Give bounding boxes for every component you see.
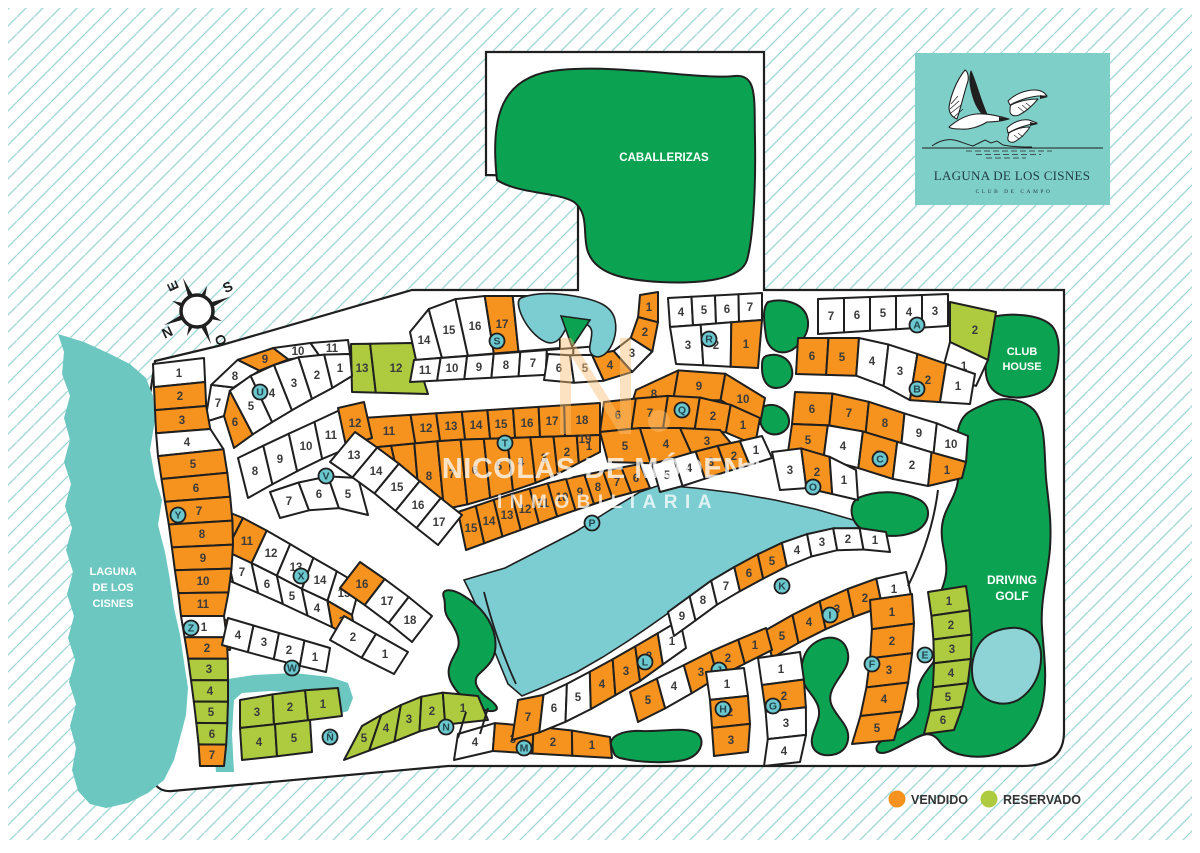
svg-text:7: 7 xyxy=(846,408,852,420)
svg-text:1: 1 xyxy=(669,636,676,648)
svg-text:9: 9 xyxy=(476,362,482,374)
svg-text:3: 3 xyxy=(932,306,938,318)
svg-text:9: 9 xyxy=(916,428,922,440)
svg-text:4: 4 xyxy=(256,737,263,749)
svg-text:1: 1 xyxy=(872,535,879,547)
svg-text:5: 5 xyxy=(208,707,215,719)
svg-text:4: 4 xyxy=(948,668,955,680)
svg-text:V: V xyxy=(322,471,329,483)
svg-text:9: 9 xyxy=(679,611,685,623)
svg-text:7: 7 xyxy=(209,750,215,762)
svg-text:9: 9 xyxy=(696,381,702,393)
svg-text:11: 11 xyxy=(325,430,338,442)
svg-text:L: L xyxy=(642,657,649,669)
svg-text:H: H xyxy=(719,704,727,716)
svg-text:W: W xyxy=(287,663,297,675)
svg-text:2: 2 xyxy=(814,467,820,479)
svg-text:LAGUNA DE LOS CISNES: LAGUNA DE LOS CISNES xyxy=(934,168,1091,183)
svg-text:3: 3 xyxy=(206,664,212,676)
svg-text:5: 5 xyxy=(361,733,368,745)
svg-text:2: 2 xyxy=(429,706,435,718)
svg-text:3: 3 xyxy=(179,415,185,427)
svg-text:6: 6 xyxy=(809,351,815,363)
svg-text:12: 12 xyxy=(349,418,362,430)
svg-text:2: 2 xyxy=(710,411,716,423)
svg-text:5: 5 xyxy=(880,308,887,320)
svg-text:CISNES: CISNES xyxy=(93,598,134,610)
svg-text:7: 7 xyxy=(747,302,753,314)
svg-text:3: 3 xyxy=(787,465,793,477)
svg-text:14: 14 xyxy=(418,335,431,347)
svg-text:5: 5 xyxy=(645,695,652,707)
svg-text:12: 12 xyxy=(265,548,278,560)
svg-text:10: 10 xyxy=(197,576,210,588)
svg-text:13: 13 xyxy=(348,450,361,462)
svg-text:17: 17 xyxy=(496,319,509,331)
svg-text:1: 1 xyxy=(382,649,389,661)
svg-text:LAGUNA: LAGUNA xyxy=(89,566,136,578)
svg-text:1: 1 xyxy=(724,679,731,691)
svg-text:18: 18 xyxy=(576,415,589,427)
svg-text:5: 5 xyxy=(779,631,786,643)
svg-text:2: 2 xyxy=(177,391,183,403)
svg-text:16: 16 xyxy=(521,418,534,430)
svg-text:15: 15 xyxy=(465,523,478,535)
svg-text:2: 2 xyxy=(925,375,931,387)
svg-text:RESERVADO: RESERVADO xyxy=(1003,793,1081,807)
svg-text:U: U xyxy=(256,387,264,399)
svg-text:7: 7 xyxy=(215,398,221,410)
svg-text:Ñ: Ñ xyxy=(326,731,334,744)
svg-text:11: 11 xyxy=(197,599,210,611)
svg-text:10: 10 xyxy=(446,363,459,375)
svg-text:6: 6 xyxy=(316,489,322,501)
svg-text:4: 4 xyxy=(472,737,479,749)
svg-text:5: 5 xyxy=(345,489,352,501)
svg-text:14: 14 xyxy=(483,516,496,528)
svg-text:5: 5 xyxy=(190,459,197,471)
svg-text:5: 5 xyxy=(289,591,296,603)
svg-text:5: 5 xyxy=(248,401,255,413)
svg-text:7: 7 xyxy=(530,358,536,370)
svg-text:4: 4 xyxy=(806,617,813,629)
svg-text:F: F xyxy=(869,659,876,671)
svg-text:Q: Q xyxy=(678,405,686,417)
svg-text:1: 1 xyxy=(944,465,951,477)
svg-text:3: 3 xyxy=(406,714,412,726)
svg-text:10: 10 xyxy=(300,441,313,453)
svg-text:9: 9 xyxy=(200,553,206,565)
svg-text:GOLF: GOLF xyxy=(995,589,1028,603)
svg-text:8: 8 xyxy=(503,360,510,372)
svg-text:DRIVING: DRIVING xyxy=(987,573,1037,587)
svg-text:6: 6 xyxy=(854,310,860,322)
svg-text:16: 16 xyxy=(412,500,425,512)
svg-text:1: 1 xyxy=(201,622,208,634)
svg-text:1: 1 xyxy=(589,740,596,752)
svg-text:13: 13 xyxy=(356,363,369,375)
svg-text:4: 4 xyxy=(794,545,801,557)
svg-text:6: 6 xyxy=(209,729,215,741)
svg-text:8: 8 xyxy=(232,371,239,383)
svg-text:E: E xyxy=(921,650,928,662)
svg-text:16: 16 xyxy=(356,579,369,591)
svg-text:7: 7 xyxy=(723,581,729,593)
svg-text:CLUB: CLUB xyxy=(1007,346,1038,358)
svg-text:4: 4 xyxy=(881,694,888,706)
svg-text:3: 3 xyxy=(897,366,903,378)
svg-text:2: 2 xyxy=(350,632,356,644)
svg-text:S: S xyxy=(493,336,500,348)
svg-text:3: 3 xyxy=(704,436,710,448)
svg-text:7: 7 xyxy=(239,567,245,579)
svg-text:3: 3 xyxy=(698,667,704,679)
svg-text:10: 10 xyxy=(737,394,750,406)
svg-text:15: 15 xyxy=(495,419,508,431)
svg-text:2: 2 xyxy=(845,534,851,546)
svg-text:6: 6 xyxy=(724,304,730,316)
svg-text:17: 17 xyxy=(433,517,446,529)
svg-text:11: 11 xyxy=(326,343,339,355)
svg-text:1: 1 xyxy=(752,640,759,652)
svg-text:1: 1 xyxy=(337,363,344,375)
svg-text:5: 5 xyxy=(805,435,812,447)
svg-text:9: 9 xyxy=(262,354,268,366)
svg-text:6: 6 xyxy=(264,579,270,591)
svg-text:6: 6 xyxy=(940,715,946,727)
svg-text:8: 8 xyxy=(252,466,259,478)
svg-text:4: 4 xyxy=(314,603,321,615)
svg-text:8: 8 xyxy=(700,595,707,607)
svg-text:15: 15 xyxy=(391,482,404,494)
svg-text:6: 6 xyxy=(746,568,752,580)
svg-text:Y: Y xyxy=(174,510,181,522)
svg-text:2: 2 xyxy=(889,636,895,648)
svg-text:3: 3 xyxy=(819,537,825,549)
svg-text:4: 4 xyxy=(235,630,242,642)
svg-text:3: 3 xyxy=(291,378,297,390)
svg-text:CLUB DE CAMPO: CLUB DE CAMPO xyxy=(976,189,1053,195)
svg-text:5: 5 xyxy=(945,692,952,704)
svg-text:11: 11 xyxy=(419,365,432,377)
svg-text:5: 5 xyxy=(874,723,881,735)
svg-text:1: 1 xyxy=(841,475,848,487)
svg-text:5: 5 xyxy=(291,733,298,745)
svg-text:Z: Z xyxy=(188,623,195,635)
svg-text:8: 8 xyxy=(882,418,889,430)
svg-text:14: 14 xyxy=(470,420,483,432)
svg-text:O: O xyxy=(809,482,817,494)
svg-text:X: X xyxy=(297,571,304,583)
svg-text:4: 4 xyxy=(207,686,214,698)
svg-text:4: 4 xyxy=(678,307,685,319)
svg-text:1: 1 xyxy=(740,420,747,432)
svg-text:6: 6 xyxy=(551,703,557,715)
svg-text:12: 12 xyxy=(420,423,433,435)
svg-text:4: 4 xyxy=(269,388,276,400)
svg-text:8: 8 xyxy=(199,529,206,541)
svg-text:NICOLÁS DE MÓDENA: NICOLÁS DE MÓDENA xyxy=(442,451,766,485)
svg-text:3: 3 xyxy=(886,665,892,677)
svg-text:3: 3 xyxy=(254,707,260,719)
svg-text:18: 18 xyxy=(404,615,417,627)
svg-text:2: 2 xyxy=(862,593,868,605)
svg-text:5: 5 xyxy=(839,352,846,364)
svg-text:P: P xyxy=(588,518,595,530)
svg-text:5: 5 xyxy=(622,441,629,453)
svg-text:2: 2 xyxy=(550,737,556,749)
svg-text:11: 11 xyxy=(383,426,396,438)
svg-text:I: I xyxy=(829,610,832,622)
svg-text:2: 2 xyxy=(948,620,954,632)
svg-text:8: 8 xyxy=(426,471,433,483)
svg-text:G: G xyxy=(769,701,777,713)
svg-text:1: 1 xyxy=(743,339,750,351)
svg-text:3: 3 xyxy=(783,718,789,730)
svg-text:3: 3 xyxy=(728,735,734,747)
svg-text:3: 3 xyxy=(261,637,267,649)
svg-text:14: 14 xyxy=(314,575,327,587)
svg-text:7: 7 xyxy=(286,496,292,508)
svg-text:2: 2 xyxy=(781,691,787,703)
svg-text:1: 1 xyxy=(320,699,327,711)
svg-text:14: 14 xyxy=(370,466,383,478)
svg-text:19: 19 xyxy=(579,434,592,446)
svg-text:1: 1 xyxy=(955,381,962,393)
svg-text:6: 6 xyxy=(193,483,199,495)
svg-text:4: 4 xyxy=(840,441,847,453)
svg-text:5: 5 xyxy=(575,692,582,704)
svg-text:6: 6 xyxy=(809,404,815,416)
svg-text:4: 4 xyxy=(906,307,913,319)
svg-text:13: 13 xyxy=(445,421,458,433)
svg-text:5: 5 xyxy=(769,556,776,568)
svg-text:2: 2 xyxy=(286,645,292,657)
svg-text:3: 3 xyxy=(685,340,691,352)
svg-text:1: 1 xyxy=(891,584,898,596)
svg-text:4: 4 xyxy=(607,360,614,372)
svg-text:3: 3 xyxy=(623,666,629,678)
svg-text:B: B xyxy=(913,384,921,396)
svg-text:T: T xyxy=(502,438,509,450)
svg-text:2: 2 xyxy=(725,653,731,665)
svg-text:3: 3 xyxy=(949,644,955,656)
svg-text:2: 2 xyxy=(314,370,320,382)
svg-text:11: 11 xyxy=(241,536,254,548)
svg-text:1: 1 xyxy=(889,607,896,619)
svg-text:4: 4 xyxy=(671,681,678,693)
svg-text:6: 6 xyxy=(232,417,238,429)
svg-text:10: 10 xyxy=(945,439,958,451)
svg-text:N: N xyxy=(442,722,450,734)
svg-text:4: 4 xyxy=(184,437,191,449)
svg-text:2: 2 xyxy=(972,325,978,337)
svg-text:7: 7 xyxy=(196,506,202,518)
svg-text:A: A xyxy=(913,320,921,332)
svg-text:4: 4 xyxy=(663,439,670,451)
svg-text:VENDIDO: VENDIDO xyxy=(911,793,968,807)
svg-text:1: 1 xyxy=(312,652,319,664)
svg-text:16: 16 xyxy=(469,321,482,333)
svg-text:2: 2 xyxy=(909,460,915,472)
svg-text:15: 15 xyxy=(443,325,456,337)
svg-text:4: 4 xyxy=(781,746,788,758)
svg-text:R: R xyxy=(705,334,713,346)
svg-text:7: 7 xyxy=(525,712,531,724)
svg-text:2: 2 xyxy=(642,327,648,339)
svg-text:12: 12 xyxy=(390,363,403,375)
svg-text:2: 2 xyxy=(287,702,293,714)
svg-text:4: 4 xyxy=(383,723,390,735)
svg-text:M: M xyxy=(520,743,529,755)
svg-text:17: 17 xyxy=(381,596,394,608)
svg-text:4: 4 xyxy=(599,679,606,691)
svg-text:HOUSE: HOUSE xyxy=(1002,361,1041,373)
svg-text:C: C xyxy=(876,454,884,466)
svg-text:DE LOS: DE LOS xyxy=(93,582,134,594)
svg-text:CABALLERIZAS: CABALLERIZAS xyxy=(619,152,709,164)
svg-text:2: 2 xyxy=(204,643,210,655)
svg-text:1: 1 xyxy=(946,596,953,608)
svg-text:7: 7 xyxy=(828,311,834,323)
svg-text:INMOBILIARIA: INMOBILIARIA xyxy=(497,492,719,513)
svg-text:9: 9 xyxy=(277,454,283,466)
svg-text:1: 1 xyxy=(778,664,785,676)
svg-text:4: 4 xyxy=(869,356,876,368)
svg-text:1: 1 xyxy=(646,302,653,314)
svg-text:K: K xyxy=(778,581,786,593)
svg-text:1: 1 xyxy=(176,368,183,380)
svg-text:5: 5 xyxy=(701,305,708,317)
svg-text:17: 17 xyxy=(546,416,559,428)
